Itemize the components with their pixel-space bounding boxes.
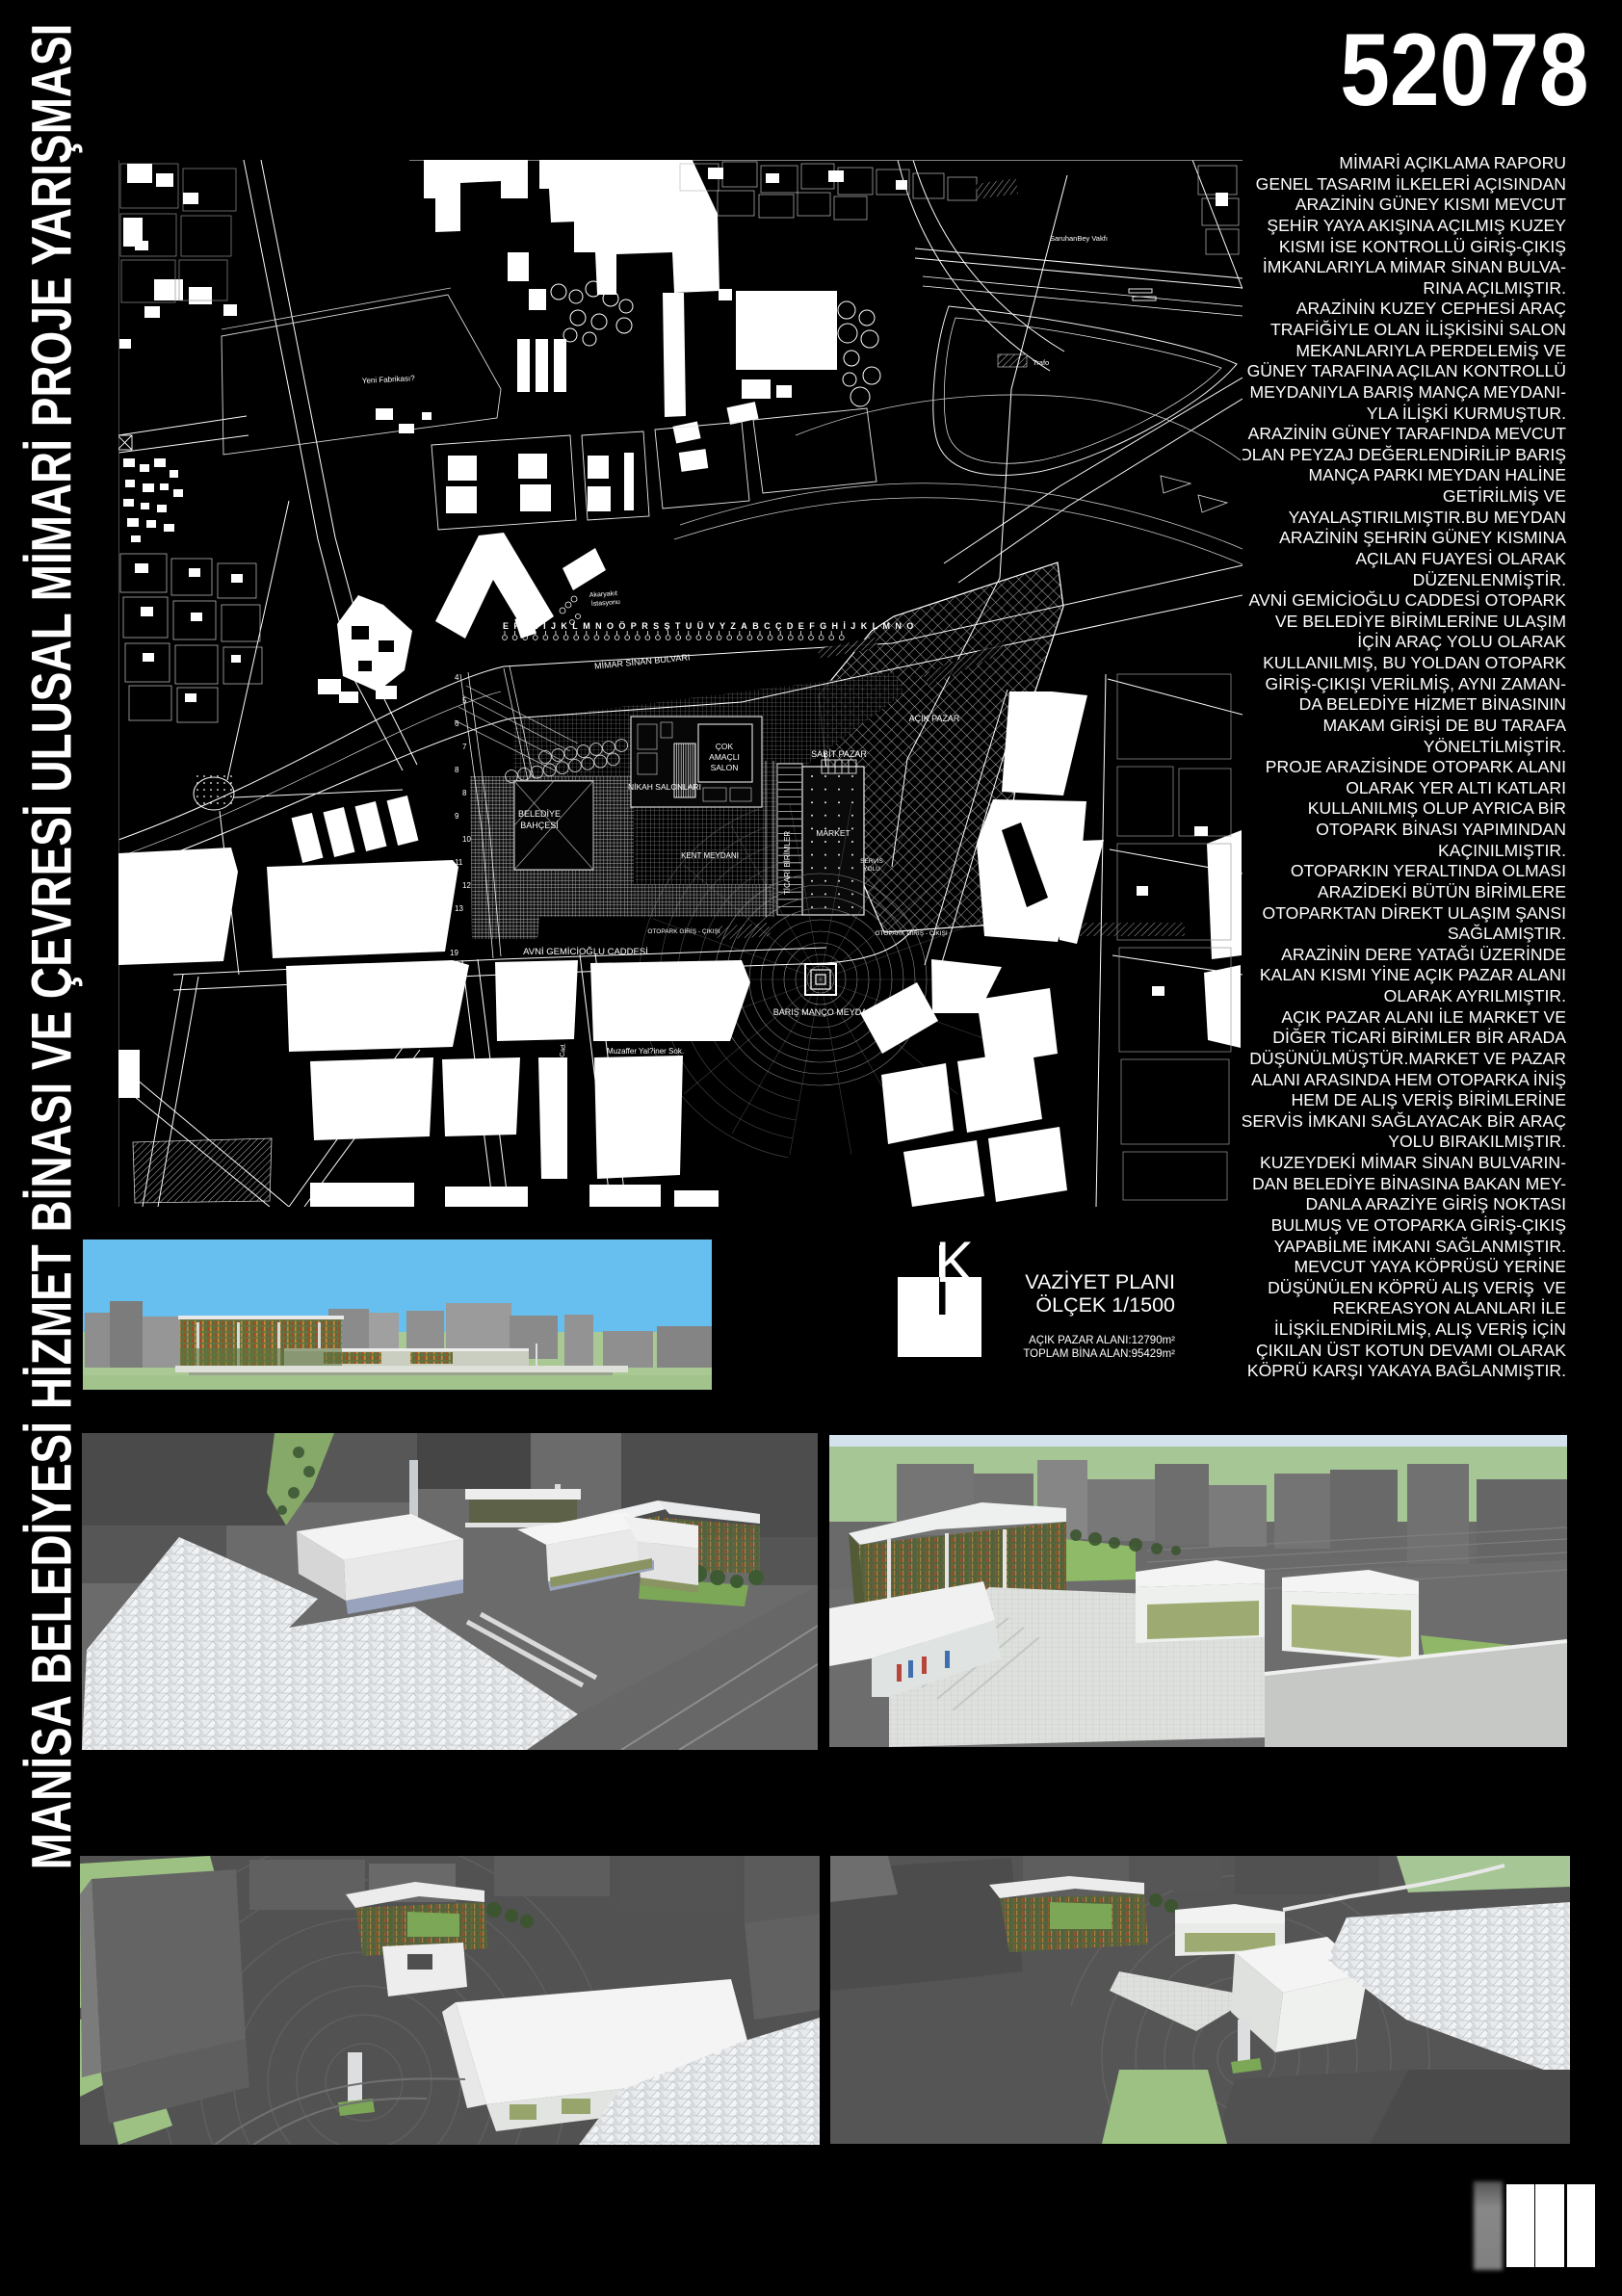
svg-text:12: 12 [462, 881, 471, 890]
svg-text:Muzaffer Yal?iner Sok.: Muzaffer Yal?iner Sok. [607, 1047, 684, 1056]
svg-text:Trafo: Trafo [1033, 358, 1049, 367]
svg-text:BELEDİYE: BELEDİYE [518, 809, 561, 819]
svg-text:7: 7 [462, 743, 467, 751]
svg-text:9: 9 [455, 812, 459, 821]
svg-text:OTOPARK GİRİŞ - ÇIKIŞI: OTOPARK GİRİŞ - ÇIKIŞI [647, 926, 719, 935]
svg-text:KENT MEYDANI: KENT MEYDANI [681, 851, 739, 860]
svg-text:SERVİS: SERVİS [860, 856, 883, 865]
svg-text:6: 6 [455, 719, 459, 728]
svg-text:AVNİ GEMİCİOĞLU CADDESİ: AVNİ GEMİCİOĞLU CADDESİ [523, 947, 648, 957]
svg-text:8: 8 [462, 789, 467, 797]
svg-text:8: 8 [455, 766, 459, 774]
svg-text:4: 4 [455, 673, 459, 682]
svg-text:19: 19 [450, 949, 458, 957]
svg-text:BARIŞ MANÇO MEYDANI: BARIŞ MANÇO MEYDANI [773, 1007, 876, 1017]
svg-text:NİKAH SALONLARI: NİKAH SALONLARI [628, 782, 701, 792]
svg-text:SABİT PAZAR: SABİT PAZAR [811, 749, 867, 759]
svg-text:SaruhanBey Vakfı: SaruhanBey Vakfı [1050, 234, 1108, 243]
svg-text:YOLU: YOLU [863, 866, 880, 873]
svg-text:AMAÇLI: AMAÇLI [709, 752, 740, 762]
svg-text:SALON: SALON [711, 763, 739, 772]
svg-text:OTOPARK GİRİŞ - ÇIKIŞI: OTOPARK GİRİŞ - ÇIKIŞI [875, 928, 947, 937]
svg-text:TİCARİ BİRİMLER: TİCARİ BİRİMLER [783, 831, 792, 895]
svg-text:5: 5 [462, 696, 467, 705]
svg-text:BAHÇESİ: BAHÇESİ [520, 821, 559, 830]
svg-text:ÇOK: ÇOK [716, 742, 734, 751]
svg-text:EFHIİJKLMNOÖPRSŞTUÜVYZABCÇDEFG: EFHIİJKLMNOÖPRSŞTUÜVYZABCÇDEFGHİJKLMNO [503, 621, 919, 631]
svg-text:AÇIK PAZAR: AÇIK PAZAR [909, 714, 960, 723]
svg-text:13: 13 [455, 904, 463, 913]
svg-text:10: 10 [462, 835, 471, 844]
svg-text:11: 11 [455, 858, 463, 867]
svg-text:MARKET: MARKET [816, 828, 850, 838]
